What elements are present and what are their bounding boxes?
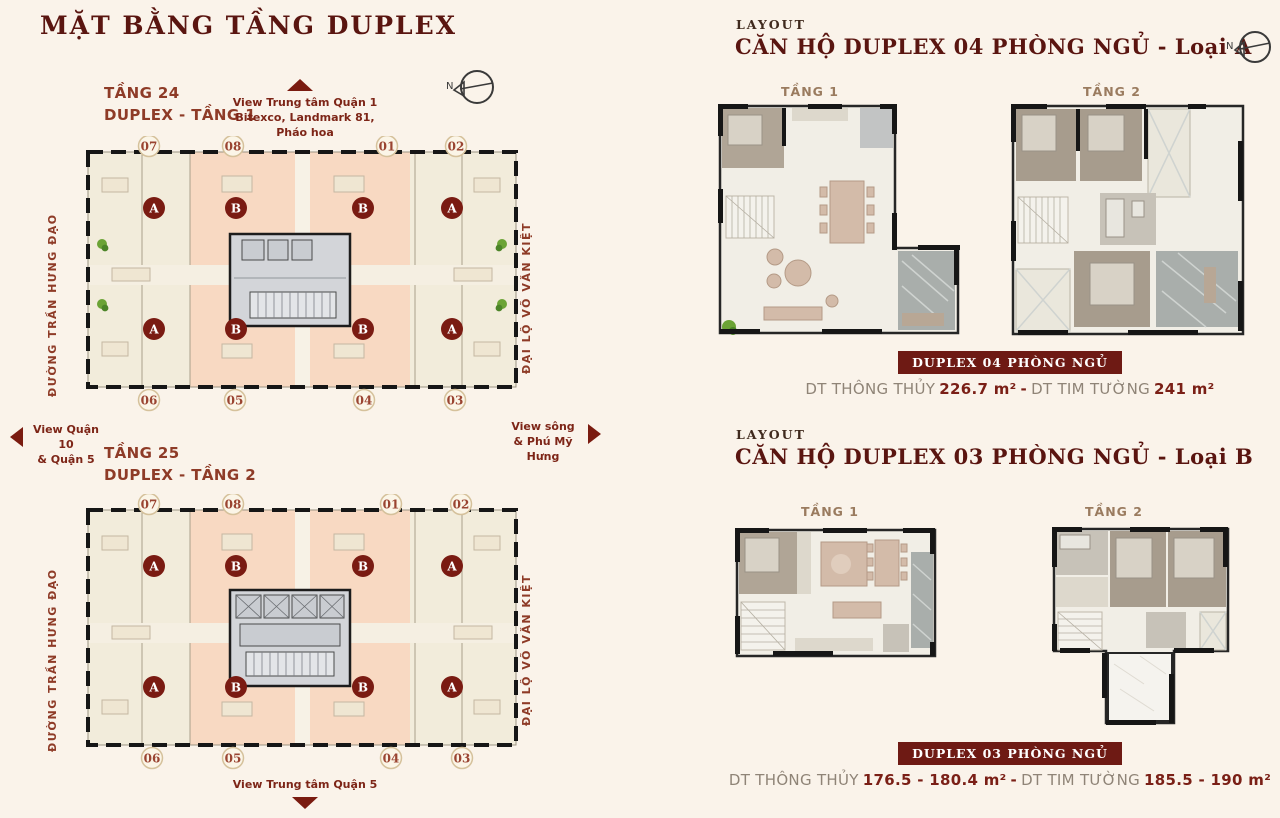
street-label-vo-van-kiet: ĐẠI LỘ VÕ VĂN KIỆT <box>520 550 533 750</box>
dining-table <box>830 181 864 243</box>
layout-b-title: CĂN HỘ DUPLEX 03 PHÒNG NGỦ - Loại B <box>735 444 1253 469</box>
svg-text:A: A <box>446 202 457 216</box>
balcony <box>1148 109 1190 197</box>
view-bottom-note: View Trung tâm Quận 5 <box>230 778 380 793</box>
layout-a-eyebrow: LAYOUT <box>736 17 806 32</box>
duplex-floorplan-sheet: { "page_title": "MẶT BẰNG TẦNG DUPLEX", … <box>0 0 1280 818</box>
core <box>230 234 350 326</box>
area-value: 176.5 - 180.4 m² <box>863 771 1007 789</box>
tower-plate <box>88 510 516 745</box>
floor-plan-tang-24: A B B A A B B A 07 08 01 02 06 05 04 03 <box>82 136 522 412</box>
area-separator: - <box>1011 771 1018 789</box>
area-separator: - <box>1021 380 1028 398</box>
layout-b-floor1-tag: TẦNG 1 <box>790 504 870 519</box>
wardrobe <box>1056 577 1108 607</box>
view-left-note: View Quận 10 & Quận 5 <box>26 423 106 468</box>
layout-a-badge-row: DUPLEX 04 PHÒNG NGỦ <box>760 351 1260 374</box>
area-label: DT TIM TƯỜNG <box>1021 771 1140 789</box>
svg-text:01: 01 <box>379 140 396 154</box>
svg-text:A: A <box>446 681 457 695</box>
svg-text:B: B <box>231 681 241 695</box>
balcony <box>1200 612 1226 650</box>
view-right-note: View sông & Phú Mỹ Hưng <box>502 420 584 465</box>
svg-text:04: 04 <box>383 752 400 766</box>
street-label-tran-hung-dao: ĐƯỜNG TRẦN HƯNG ĐẠO <box>46 190 59 420</box>
compass-north-label: N <box>446 81 453 92</box>
tower-plate <box>88 152 516 387</box>
plan-duplex-b-tang-1 <box>733 524 943 666</box>
kitchen-island <box>833 602 881 618</box>
terrace <box>911 552 933 648</box>
svg-text:A: A <box>148 681 159 695</box>
svg-text:A: A <box>148 202 159 216</box>
compass-icon: N <box>430 60 506 116</box>
kitchen-counter <box>792 108 848 121</box>
layout-a-floor1-tag: TẦNG 1 <box>770 84 850 99</box>
svg-text:06: 06 <box>141 394 158 408</box>
plan-duplex-a-tang-2 <box>1008 101 1250 343</box>
kitchen-counter <box>795 638 873 651</box>
svg-text:B: B <box>231 323 241 337</box>
balcony <box>1016 269 1070 331</box>
floor-plan-tang-25: A B B A A B B A 07 08 01 02 06 05 04 03 <box>82 494 522 770</box>
svg-text:B: B <box>358 323 368 337</box>
area-label: DT THÔNG THỦY <box>729 771 859 789</box>
svg-text:08: 08 <box>225 140 242 154</box>
terrace <box>1156 251 1238 327</box>
svg-text:A: A <box>446 323 457 337</box>
bathtub <box>1106 199 1124 237</box>
sofa-set <box>821 542 867 586</box>
area-value: 241 m² <box>1154 380 1215 398</box>
layout-b-badge-row: DUPLEX 03 PHÒNG NGỦ <box>760 742 1260 765</box>
terrace <box>898 251 955 330</box>
stairs <box>1058 612 1102 650</box>
svg-text:A: A <box>446 560 457 574</box>
layout-b-badge: DUPLEX 03 PHÒNG NGỦ <box>898 742 1122 765</box>
svg-text:07: 07 <box>141 498 158 512</box>
svg-text:04: 04 <box>356 394 373 408</box>
svg-text:05: 05 <box>225 752 242 766</box>
area-label: DT THÔNG THỦY <box>805 380 935 398</box>
svg-text:A: A <box>148 560 159 574</box>
wardrobe <box>797 532 811 594</box>
layout-b-floor2-tag: TẦNG 2 <box>1074 504 1154 519</box>
svg-text:03: 03 <box>454 752 471 766</box>
stairs <box>741 602 785 650</box>
street-label-vo-van-kiet: ĐẠI LỘ VÕ VĂN KIỆT <box>520 203 533 393</box>
svg-text:B: B <box>231 202 241 216</box>
svg-text:02: 02 <box>448 140 465 154</box>
utility-area <box>860 108 893 148</box>
svg-text:B: B <box>358 202 368 216</box>
layout-a-title: CĂN HỘ DUPLEX 04 PHÒNG NGỦ - Loại A <box>735 34 1252 59</box>
floor-25-label: TẦNG 25 DUPLEX - TẦNG 2 <box>104 443 256 487</box>
svg-text:08: 08 <box>225 498 242 512</box>
stairs <box>1018 197 1068 243</box>
view-top-note: View Trung tâm Quận 1 Bitexco, Landmark … <box>225 96 385 141</box>
plan-duplex-b-tang-2 <box>1050 524 1235 732</box>
view-top-arrow-icon <box>287 79 313 91</box>
svg-text:01: 01 <box>383 498 400 512</box>
street-label-tran-hung-dao: ĐƯỜNG TRẦN HƯNG ĐẠO <box>46 545 59 775</box>
core <box>230 590 350 686</box>
svg-text:03: 03 <box>447 394 464 408</box>
view-left-arrow-icon <box>10 427 23 447</box>
area-value: 226.7 m² <box>939 380 1016 398</box>
bathroom-area <box>1146 612 1186 648</box>
layout-a-areas: DT THÔNG THỦY226.7 m²-DT TIM TƯỜNG241 m² <box>740 380 1280 398</box>
svg-text:07: 07 <box>141 140 158 154</box>
layout-b-eyebrow: LAYOUT <box>736 427 806 442</box>
dining-table <box>867 540 907 586</box>
plan-duplex-a-tang-1 <box>712 101 962 343</box>
layout-b-areas: DT THÔNG THỦY176.5 - 180.4 m²-DT TIM TƯỜ… <box>720 771 1280 789</box>
svg-text:B: B <box>231 560 241 574</box>
layout-a-floor2-tag: TẦNG 2 <box>1072 84 1152 99</box>
view-right-arrow-icon <box>588 424 601 444</box>
svg-text:A: A <box>148 323 159 337</box>
svg-text:B: B <box>358 681 368 695</box>
compass-icon: N <box>1214 22 1280 74</box>
compass-north-label: N <box>1226 41 1233 52</box>
void-corridor <box>1108 653 1172 721</box>
area-label: DT TIM TƯỜNG <box>1031 380 1150 398</box>
svg-text:02: 02 <box>453 498 470 512</box>
svg-text:06: 06 <box>144 752 161 766</box>
stairs <box>726 196 774 238</box>
view-bottom-arrow-icon <box>292 797 318 809</box>
layout-a-badge: DUPLEX 04 PHÒNG NGỦ <box>898 351 1122 374</box>
bathroom-area <box>883 624 909 652</box>
svg-text:B: B <box>358 560 368 574</box>
bathtub <box>1060 535 1090 549</box>
page-title: MẶT BẰNG TẦNG DUPLEX <box>40 11 457 40</box>
svg-text:05: 05 <box>227 394 244 408</box>
area-value: 185.5 - 190 m² <box>1144 771 1271 789</box>
